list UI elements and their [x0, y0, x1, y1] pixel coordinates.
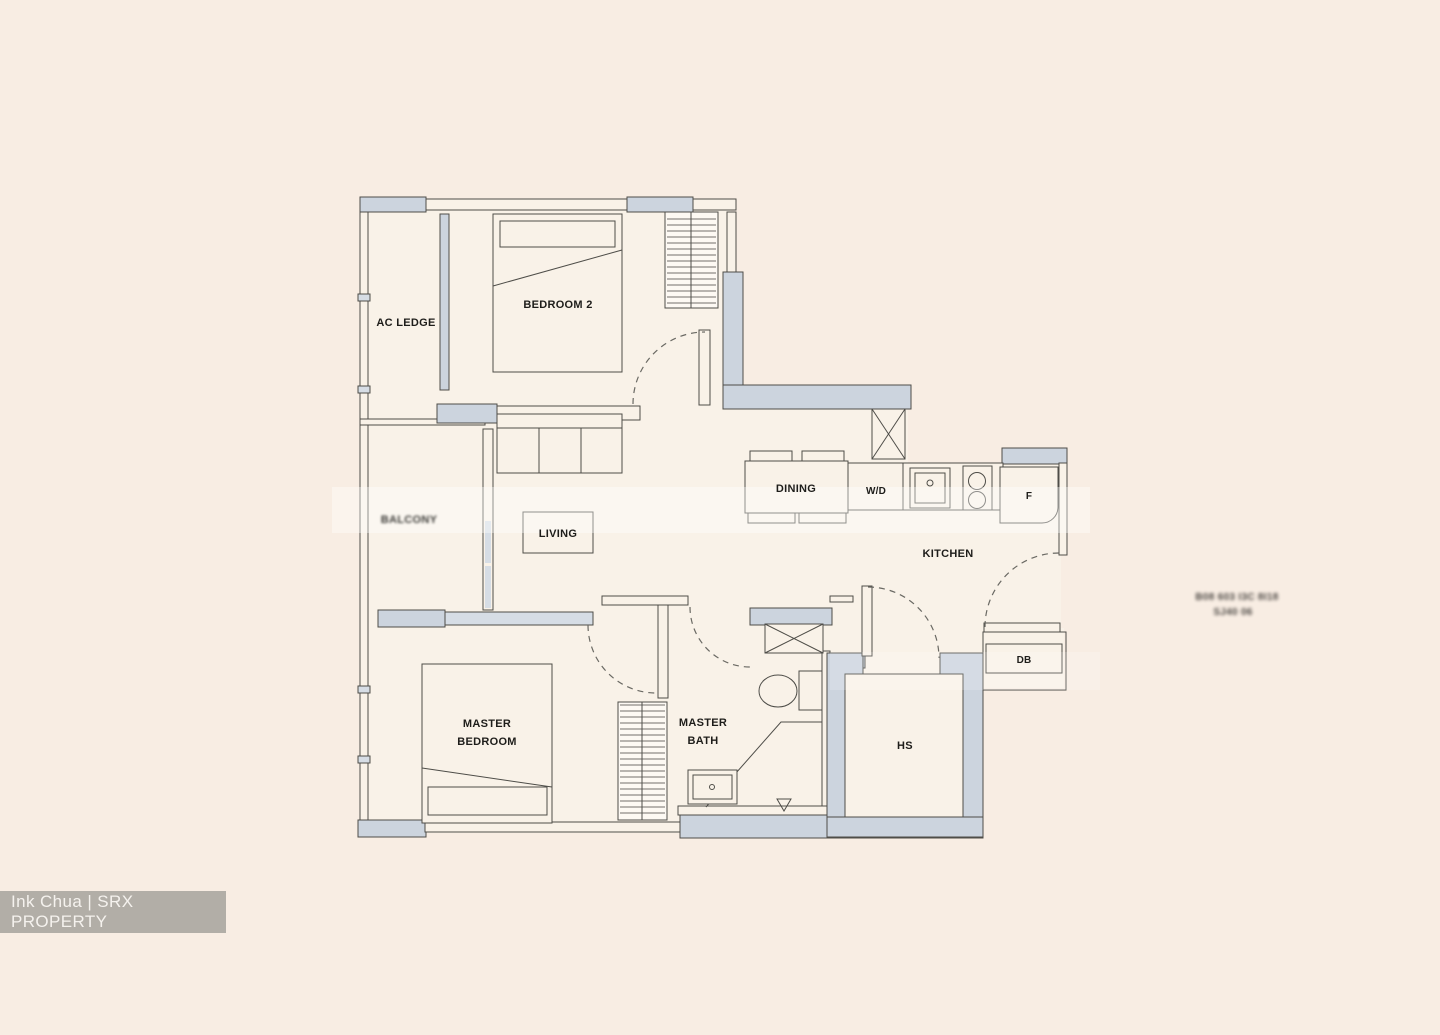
label-hs: HS — [897, 740, 913, 752]
window-tick — [358, 686, 370, 693]
label-db: DB — [1017, 655, 1032, 666]
bath-sink — [688, 770, 737, 804]
wall-right-upper — [727, 212, 736, 272]
label-balcony-blurred: BALCONY — [381, 514, 438, 526]
label-fridge: F — [1026, 491, 1032, 502]
door-leaf-hs — [862, 586, 872, 656]
label-living: LIVING — [539, 528, 577, 540]
wardrobe-master — [618, 702, 667, 820]
blur-band — [830, 652, 1100, 690]
door-leaf-bedroom2 — [699, 330, 710, 405]
label-dining: DINING — [776, 483, 816, 495]
label-bedroom2: BEDROOM 2 — [523, 299, 592, 311]
watermark-credit: Ink Chua | SRX PROPERTY — [0, 891, 226, 933]
sofa — [497, 414, 622, 473]
hs-wall-bottom — [827, 817, 983, 837]
label-master-bath-1: MASTER — [679, 717, 727, 729]
label-kitchen: KITCHEN — [923, 548, 974, 560]
wall-acledge-divider — [440, 214, 449, 390]
wall-bottom-left-block — [358, 820, 426, 837]
label-master-bedroom-1: MASTER — [463, 718, 511, 730]
window-tick — [358, 294, 370, 301]
wall-masterbed-top-a — [378, 610, 445, 627]
watermark-text: Ink Chua | SRX PROPERTY — [11, 892, 226, 932]
wall-kitchen-top-right — [1002, 448, 1067, 464]
floorplan-svg: AC LEDGE BEDROOM 2 BALCONY LIVING DINING… — [0, 0, 1440, 1035]
window-tick — [358, 756, 370, 763]
wall-bath-bottom — [678, 806, 828, 815]
floorplan-page: { "palette": { "page-bg": "#f8ede3", "fl… — [0, 0, 1440, 1035]
wall-bed-bath-divider — [658, 605, 668, 698]
label-wd: W/D — [866, 486, 886, 497]
label-master-bedroom-2: BEDROOM — [457, 736, 517, 748]
wall-hall-jog — [602, 596, 688, 605]
bed-bedroom2 — [493, 214, 622, 372]
label-ac-ledge: AC LEDGE — [376, 317, 435, 329]
wall-right-vertical — [723, 272, 743, 389]
wall-bedroom2-bottom-block — [437, 404, 497, 423]
wall-bath-top — [750, 608, 832, 625]
window-tick — [358, 386, 370, 393]
entry-door-leaf — [984, 623, 1060, 632]
wall-top-left-block — [360, 197, 426, 212]
wall-top-window — [426, 199, 627, 210]
wall-top-right — [693, 199, 736, 210]
wall-top-right-block — [627, 197, 693, 212]
label-master-bath-2: BATH — [688, 735, 719, 747]
wall-corridor-top — [723, 385, 911, 409]
wardrobe-bedroom2 — [665, 212, 718, 308]
slider-pane — [485, 566, 491, 608]
blur-band — [332, 487, 1090, 533]
wall-hall-piece — [830, 596, 853, 602]
blurred-unit-text-1: B08 603 I3C 8I18 — [1195, 592, 1278, 603]
blurred-unit-text-2: SJ40 06 — [1213, 607, 1252, 618]
wall-masterbed-top-b — [445, 612, 593, 625]
